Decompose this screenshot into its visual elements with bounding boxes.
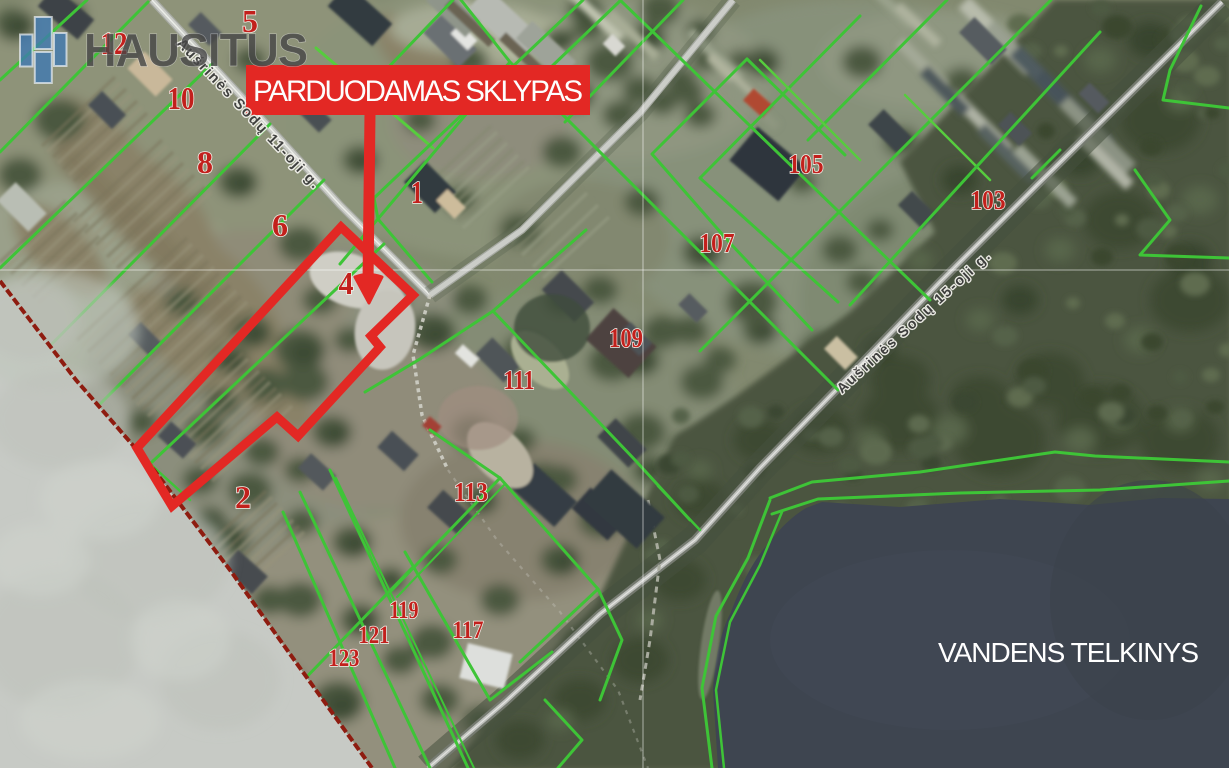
svg-text:105: 105: [789, 149, 824, 179]
svg-text:121: 121: [359, 622, 390, 649]
svg-text:VANDENS TELKINYS: VANDENS TELKINYS: [938, 637, 1199, 668]
svg-text:10: 10: [168, 80, 195, 116]
svg-text:2: 2: [235, 479, 251, 515]
svg-text:8: 8: [197, 144, 213, 180]
svg-text:111: 111: [504, 365, 535, 395]
svg-text:103: 103: [971, 185, 1006, 215]
svg-text:PARDUODAMAS SKLYPAS: PARDUODAMAS SKLYPAS: [253, 75, 583, 108]
svg-text:6: 6: [272, 207, 288, 243]
svg-text:HAUSITUS: HAUSITUS: [84, 24, 307, 76]
svg-text:123: 123: [329, 645, 360, 672]
svg-text:1: 1: [411, 174, 423, 210]
svg-text:109: 109: [609, 323, 643, 353]
svg-text:107: 107: [700, 228, 735, 258]
svg-text:117: 117: [453, 617, 484, 644]
svg-text:119: 119: [390, 597, 419, 624]
svg-text:113: 113: [454, 477, 488, 507]
svg-text:4: 4: [339, 265, 354, 301]
